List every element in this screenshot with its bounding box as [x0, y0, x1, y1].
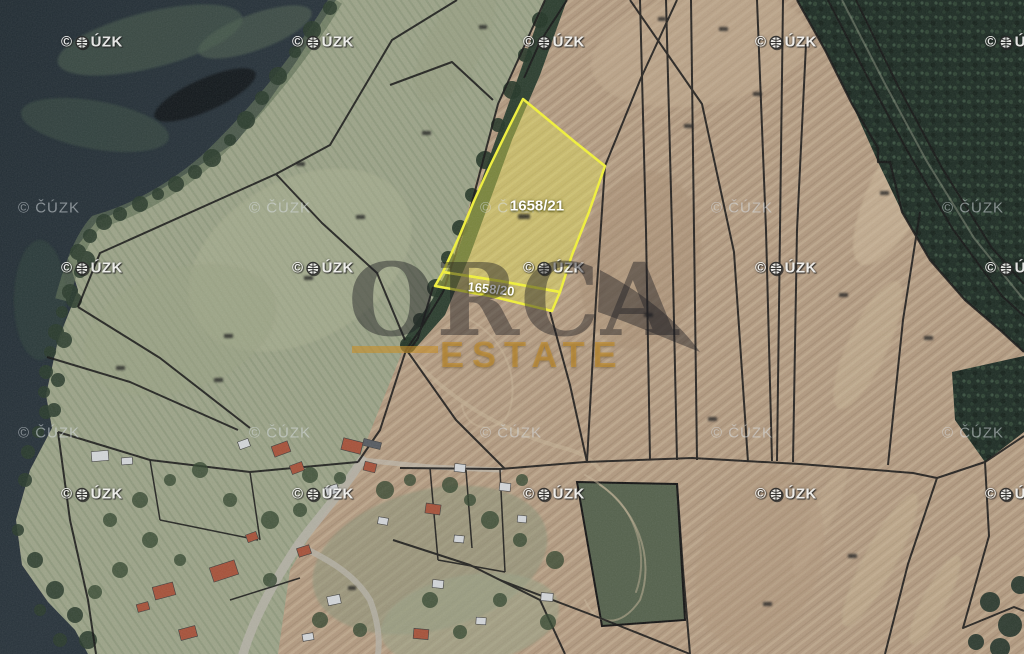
map-canvas: [0, 0, 1024, 654]
parcel-label-primary: 1658/21: [510, 198, 564, 215]
cadastral-map-viewport: ©ÚZK©ÚZK©ÚZK©ÚZK©ÚZK©ÚZK©ÚZK©ÚZK©ÚZK©ÚZK…: [0, 0, 1024, 654]
image-grain-overlay: [0, 0, 1024, 654]
